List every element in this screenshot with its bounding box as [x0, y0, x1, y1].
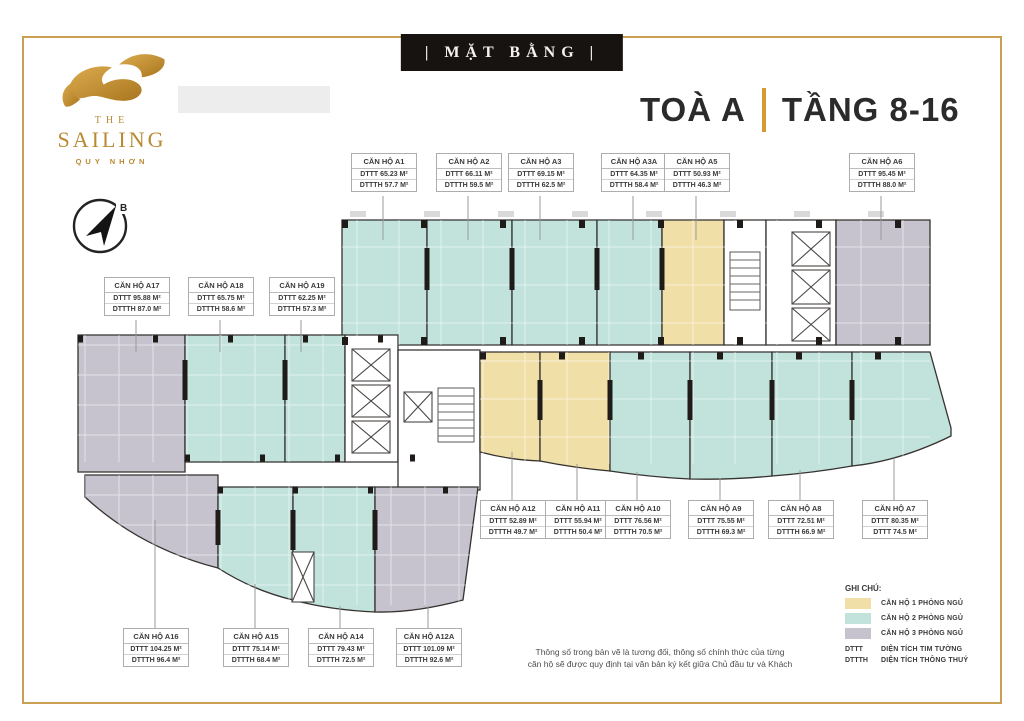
legend-item-2br: CĂN HỘ 2 PHÒNG NGỦ: [845, 613, 968, 624]
unit-label-a1: CĂN HỘ A1 DTTT 65.23 M² DTTTH 57.7 M²: [351, 153, 417, 192]
legend-title: GHI CHÚ:: [845, 584, 968, 593]
unit-label-a16: CĂN HỘ A16 DTTT 104.25 M² DTTTH 96.4 M²: [123, 628, 189, 667]
unit-label-a8: CĂN HỘ A8 DTTT 72.51 M² DTTTH 66.9 M²: [768, 500, 834, 539]
room-lines-top: [342, 220, 930, 345]
page-title: | MẶT BẰNG |: [401, 34, 623, 71]
two-bedroom-swatch: [845, 613, 871, 624]
unit-label-a17: CĂN HỘ A17 DTTT 95.88 M² DTTTH 87.0 M²: [104, 277, 170, 316]
legend-item-3br: CĂN HỘ 3 PHÒNG NGỦ: [845, 628, 968, 639]
svg-text:B: B: [120, 203, 127, 214]
unit-label-a3a: CĂN HỘ A3A DTTT 64.35 M² DTTTH 58.4 M²: [601, 153, 667, 192]
three-bedroom-swatch: [845, 628, 871, 639]
unit-label-a11: CĂN HỘ A11 DTTT 55.94 M² DTTTH 50.4 M²: [545, 500, 611, 539]
unit-label-a9: CĂN HỘ A9 DTTT 75.55 M² DTTTH 69.3 M²: [688, 500, 754, 539]
unit-label-a7: CĂN HỘ A7 DTTT 80.35 M² DTTT 74.5 M²: [862, 500, 928, 539]
plan-title: TOÀ A TẦNG 8-16: [640, 88, 960, 132]
tower-name: TOÀ A: [640, 91, 746, 129]
one-bedroom-swatch: [845, 598, 871, 609]
legend-item-1br: CĂN HỘ 1 PHÒNG NGỦ: [845, 598, 968, 609]
unit-label-a2: CĂN HỘ A2 DTTT 66.11 M² DTTTH 59.5 M²: [436, 153, 502, 192]
legend: GHI CHÚ: CĂN HỘ 1 PHÒNG NGỦ CĂN HỘ 2 PHÒ…: [845, 584, 968, 668]
unit-label-a5: CĂN HỘ A5 DTTT 50.93 M² DTTTH 46.3 M²: [664, 153, 730, 192]
logo-city: QUY NHƠN: [52, 157, 172, 166]
disclaimer-note: Thông số trong bản vẽ là tương đối, thôn…: [495, 646, 825, 671]
unit-label-a3: CĂN HỘ A3 DTTT 69.15 M² DTTTH 62.5 M²: [508, 153, 574, 192]
unit-label-a14: CĂN HỘ A14 DTTT 79.43 M² DTTTH 72.5 M²: [308, 628, 374, 667]
logo-the: THE: [52, 115, 172, 126]
room-lines-right: [480, 352, 930, 464]
unit-label-a18: CĂN HỘ A18 DTTT 65.75 M² DTTTH 58.6 M²: [188, 277, 254, 316]
compass-icon: B: [70, 194, 132, 261]
unit-label-a10: CĂN HỘ A10 DTTT 76.56 M² DTTTH 70.5 M²: [605, 500, 671, 539]
logo-name: SAILING: [52, 127, 172, 153]
legend-abbr-dttt: DTTT DIỆN TÍCH TIM TƯỜNG: [845, 646, 968, 653]
title-separator: [762, 88, 766, 132]
room-lines-midleft: [78, 335, 345, 462]
floor-range: TẦNG 8-16: [782, 91, 960, 129]
sailing-wave-icon: [57, 52, 167, 108]
unit-label-a19: CĂN HỘ A19 DTTT 62.25 M² DTTTH 57.3 M²: [269, 277, 335, 316]
legend-abbr-dttth: DTTTH DIỆN TÍCH THÔNG THUỶ: [845, 657, 968, 664]
unit-label-a6: CĂN HỘ A6 DTTT 95.45 M² DTTTH 88.0 M²: [849, 153, 915, 192]
room-lines-bottom: [85, 475, 478, 605]
brand-logo: THE SAILING QUY NHƠN: [52, 52, 172, 166]
unit-label-a12: CĂN HỘ A12 DTTT 52.89 M² DTTTH 49.7 M²: [480, 500, 546, 539]
unit-label-a15: CĂN HỘ A15 DTTT 75.14 M² DTTTH 68.4 M²: [223, 628, 289, 667]
floorplan-poster: | MẶT BẰNG | THE SAILING QUY NHƠN TOÀ A …: [0, 0, 1024, 721]
unit-label-a12a: CĂN HỘ A12A DTTT 101.09 M² DTTTH 92.6 M²: [396, 628, 462, 667]
